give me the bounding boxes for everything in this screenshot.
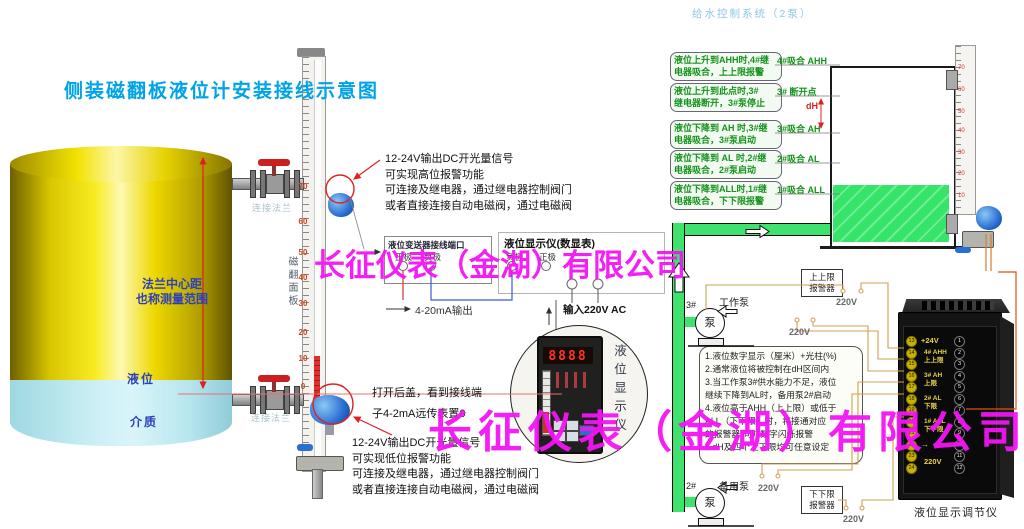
logic-tag-ahh: 4#吸合 AHH bbox=[777, 54, 827, 67]
top-flange-label: 连接法兰 bbox=[252, 201, 292, 214]
v220-label: 220V bbox=[789, 327, 810, 337]
pump-symbol: 泵 bbox=[705, 317, 716, 329]
tank-body bbox=[10, 164, 232, 382]
terminal-left: 14 bbox=[906, 348, 917, 359]
right-gauge-scale: 60 bbox=[958, 87, 965, 93]
terminal-left: 24 bbox=[906, 463, 917, 474]
logic-box-all: 液位下降到ALL时,1#继 电器吸合，下下限报警 bbox=[670, 181, 782, 210]
flange-bolt bbox=[250, 386, 256, 414]
supply-pipe-horizontal bbox=[678, 223, 830, 236]
dh-label: dH bbox=[806, 101, 818, 111]
terminal-right: 5 bbox=[954, 382, 965, 393]
tank-liquid bbox=[10, 380, 232, 446]
right-transmitter-sensor bbox=[976, 206, 1002, 230]
terminal-label-ah: 3# AH 上限 bbox=[924, 372, 942, 387]
drain-stem bbox=[312, 469, 323, 499]
input-label: 输入220V AC bbox=[563, 302, 626, 317]
bottom-flange-label: 连接法兰 bbox=[251, 411, 291, 424]
gauge-scale-label: 20 bbox=[295, 328, 311, 337]
watermark-text: 长征仪表（金湖）有限公司 bbox=[428, 396, 1024, 460]
right-gauge-flange-bottom bbox=[946, 214, 958, 234]
low-alarm-box: 下下限 报警器 bbox=[801, 486, 843, 514]
medium-label: 介质 bbox=[130, 413, 158, 430]
terminal-label-24v: +24V bbox=[921, 337, 939, 345]
right-gauge-scale: 50 bbox=[958, 109, 965, 115]
gauge-scale-label: 0 bbox=[295, 382, 311, 391]
flange-bolt bbox=[284, 386, 290, 414]
logic-box-ahh: 液位上升到AHH时,4#继 电器吸合，上上限报警 bbox=[670, 52, 782, 81]
display-readout: 8888 bbox=[548, 349, 587, 364]
gauge-scale-label: 70 bbox=[295, 182, 311, 191]
watermark-text: 长征仪表（金湖）有限公司 bbox=[314, 240, 686, 285]
backup-pump-base bbox=[698, 518, 724, 526]
terminal-label-ahh: 4# AHH 上上限 bbox=[924, 349, 947, 364]
logic-tag-al: 2#吸合 AL bbox=[777, 152, 820, 165]
terminal-left: 17 bbox=[906, 382, 917, 393]
pump-symbol: 泵 bbox=[705, 497, 716, 509]
right-drain-handle bbox=[955, 247, 971, 253]
right-gauge-scale: 20 bbox=[958, 171, 965, 177]
logic-tag-ah: 3#吸合 AH bbox=[777, 122, 821, 135]
v220-label: 220V bbox=[843, 514, 864, 524]
bottom-transmitter-sensor bbox=[310, 395, 350, 425]
right-tank-liquid bbox=[833, 185, 949, 242]
gauge-panel-label: 磁翻面板 bbox=[284, 256, 299, 308]
logic-box-stop: 液位上升到此点时,3# 继电器断开，3#泵停止 bbox=[670, 83, 782, 112]
right-drain-flange bbox=[962, 231, 994, 248]
right-gauge-scale: 40 bbox=[958, 128, 965, 134]
work-pump: 泵 bbox=[695, 308, 725, 338]
logic-box-ah: 液位下降到 AH 时,3#继 电器吸合，3#泵启动 bbox=[670, 120, 782, 149]
measuring-range-label: 法兰中心距 也称测量范围 bbox=[132, 277, 212, 307]
controller-vents bbox=[922, 301, 994, 310]
level-label: 液位 bbox=[127, 370, 155, 387]
top-valve-body bbox=[266, 174, 284, 194]
bottom-valve-body bbox=[266, 390, 284, 410]
gauge-scale-label: 10 bbox=[295, 354, 311, 363]
installation-wiring-diagram: 法兰中心距 也称测量范围 液位 介质 70 60 50 40 30 20 10 … bbox=[0, 0, 1024, 529]
display-led-row bbox=[556, 372, 590, 388]
flange-bolt bbox=[284, 170, 290, 198]
high-alarm-note: 12-24V输出DC开光量信号 可实现高位报警功能 可连接及继电器，通过继电器控… bbox=[385, 152, 572, 214]
v220-label: 220V bbox=[836, 297, 857, 307]
flange-bolt bbox=[250, 170, 256, 198]
work-pump-name: 工作泵 bbox=[719, 294, 749, 309]
drain-valve-handle bbox=[297, 444, 313, 451]
terminal-right: 12 bbox=[954, 463, 965, 474]
v220-label: 220V bbox=[758, 483, 779, 493]
top-valve-stem bbox=[272, 166, 276, 176]
terminal-left: 15 bbox=[906, 359, 917, 370]
system-title: 给水控制系统（2泵） bbox=[692, 6, 812, 21]
top-valve-handwheel bbox=[258, 159, 290, 166]
backup-pump-name: 备用泵 bbox=[719, 478, 749, 493]
display-readout-window: 8888 bbox=[543, 347, 593, 364]
right-gauge-scale: 70 bbox=[958, 65, 965, 71]
right-gauge-scale: 10 bbox=[958, 193, 965, 199]
high-alarm-box: 上上限 报警器 bbox=[801, 269, 843, 297]
top-transmitter-sensor bbox=[328, 193, 354, 217]
page-title: 侧装磁翻板液位计安装接线示意图 bbox=[64, 76, 379, 103]
gauge-indicator-red bbox=[314, 356, 320, 400]
terminal-left: 16 bbox=[906, 371, 917, 382]
bottom-valve-stem bbox=[272, 382, 276, 392]
work-pump-base bbox=[698, 338, 724, 346]
terminal-left: 13 bbox=[906, 336, 917, 347]
terminal-right: 2 bbox=[954, 348, 965, 359]
terminal-right: 3 bbox=[954, 359, 965, 370]
work-pump-num: 3# bbox=[686, 300, 696, 310]
logic-tag-all: 1#吸合 ALL bbox=[777, 183, 825, 196]
tank-top bbox=[10, 146, 232, 182]
right-gauge-flange-top bbox=[946, 70, 958, 90]
controller-caption: 液位显示调节仪 bbox=[914, 504, 998, 520]
right-tank-base bbox=[820, 246, 962, 249]
logic-tag-stop: 3# 断开点 bbox=[777, 85, 817, 98]
right-gauge-scale: 30 bbox=[958, 150, 965, 156]
backup-pump-num: 2# bbox=[686, 481, 696, 491]
output-label: 4-20mA输出 bbox=[415, 303, 473, 318]
logic-box-al: 液位下降到 AL 时,2#继 电器吸合，2#泵启动 bbox=[670, 150, 782, 179]
bottom-valve-handwheel bbox=[258, 375, 290, 382]
terminal-right: 4 bbox=[954, 371, 965, 382]
gauge-scale-label: 60 bbox=[295, 217, 311, 226]
terminal-right: 1 bbox=[954, 336, 965, 347]
